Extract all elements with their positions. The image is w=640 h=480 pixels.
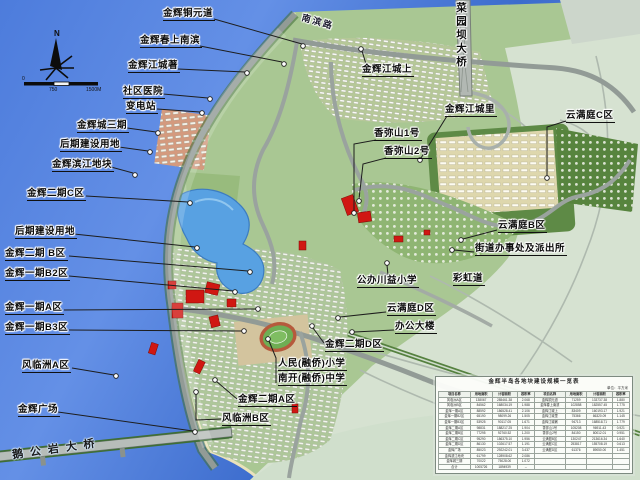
label-jiedao-banshichu: 街道办事处及派出所 (475, 243, 567, 256)
label-yunmanting-b: 云满庭B区 (498, 220, 547, 233)
label-jinhui-erqi-b: 金辉二期 B区 (5, 248, 68, 261)
table-cell: 1894939 (492, 464, 517, 470)
leader-dot-jinhui-binjiang-dikuai (133, 173, 138, 178)
label-caiyuanba-bridge: 菜园坝大桥 (455, 2, 468, 71)
label-caihong-dao: 彩虹道 (453, 273, 485, 286)
leader-fenglinzhou-a (72, 368, 114, 375)
svg-text:750: 750 (49, 87, 58, 92)
table-cell: 1005726 (470, 464, 492, 470)
table-unit-note: 单位：平方米 (438, 386, 628, 390)
label-jinhui-tongyuandao: 金辉铜元道 (163, 8, 215, 21)
leader-dot-yunmanting-d (336, 316, 341, 321)
label-gongban-chuanyi-xiaoxue: 公办川益小学 (357, 275, 419, 288)
leader-dot-houqi-jianshe-1 (148, 150, 153, 155)
svg-text:0: 0 (22, 76, 25, 82)
label-jinhui-erqi-c: 金辉二期C区 (27, 188, 86, 201)
label-jinhui-chunshang-nanbin: 金辉春上南滨 (140, 35, 202, 48)
table-row: 合计10057261894939-- (439, 464, 630, 470)
leader-dot-jinhui-tongyuandao (301, 44, 306, 49)
table-cell: 合计 (439, 464, 471, 470)
leader-dot-fenglinzhou-a (114, 374, 119, 379)
label-jinhuicheng-sanqi: 金辉城三期 (77, 120, 129, 133)
label-jinhui-erqi-d: 金辉二期D区 (325, 339, 384, 352)
label-jinhui-yiqi-b3: 金辉一期B3区 (5, 322, 70, 335)
leader-dot-jinhui-yiqi-b2 (233, 290, 238, 295)
label-fenglinzhou-a: 风临洲A区 (22, 360, 71, 373)
leader-dot-xiangmishan-2 (357, 199, 362, 204)
build-scale-table: 金辉半岛各地块建设规模一览表 单位：平方米 项目名称用地面积计容面积容积率项目名… (435, 376, 633, 474)
leader-jinhui-guangchang (58, 412, 193, 431)
label-jinhui-guangchang: 金辉广场 (18, 404, 60, 417)
table-cell (534, 464, 565, 470)
leader-dot-yunmanting-c (545, 176, 550, 181)
leader-dot-jinhui-erqi-c (188, 201, 193, 206)
label-renmin-rongqiao-xiaoxue: 人民(融侨)小学 (278, 358, 347, 371)
scale-bar: 0 750 1500M (22, 76, 101, 92)
table-cell: -- (517, 464, 534, 470)
leader-dot-yunmanting-b (459, 238, 464, 243)
leader-dot-jinhui-erqi-b (248, 270, 253, 275)
masterplan-map: N 0 750 1500M 金辉半岛各地块建设规模一览表 单位：平方米 项目名称… (0, 0, 640, 480)
leader-dot-biandianzhan (200, 111, 205, 116)
leader-dot-jinhui-jiangcheng-shang (359, 47, 364, 52)
leader-dot-houqi-jianshe-2 (195, 246, 200, 251)
leader-shequ-yiyuan (163, 94, 208, 98)
north-label: N (54, 29, 60, 38)
label-xiangmishan-2: 香弥山2号 (384, 146, 432, 159)
label-jinhui-erqi-a: 金辉二期A区 (238, 394, 297, 407)
label-fenglinzhou-b: 风临洲B区 (222, 413, 271, 426)
label-shequ-yiyuan: 社区医院 (123, 86, 165, 99)
leader-houqi-jianshe-1 (119, 147, 148, 151)
table-grid: 项目名称用地面积计容面积容积率项目名称用地面积计容面积容积率风临洲A区13806… (438, 391, 630, 470)
leader-dot-renmin-rongqiao-xiaoxue (266, 337, 271, 342)
label-jinhui-jiangcheng-zhu: 金辉江城著 (128, 60, 180, 73)
leader-dot-jinhui-chunshang-nanbin (282, 62, 287, 67)
label-bangong-dalou: 办公大楼 (395, 321, 437, 334)
leader-dot-xiangmishan-1 (352, 211, 357, 216)
leader-dot-jinhui-guangchang (193, 430, 198, 435)
label-biandianzhan: 变电站 (126, 101, 158, 114)
label-jinhui-jiangcheng-shang: 金辉江城上 (362, 64, 414, 77)
leader-dot-bangong-dalou (350, 330, 355, 335)
leader-dot-fenglinzhou-b (194, 390, 199, 395)
label-yunmanting-c: 云满庭C区 (566, 110, 615, 123)
label-xiangmishan-1: 香弥山1号 (374, 128, 422, 141)
compass-rose: N 0 750 1500M (16, 26, 106, 92)
label-yunmanting-d: 云满庭D区 (387, 303, 436, 316)
leader-jinhui-binjiang-dikuai (111, 167, 133, 173)
label-jinhui-yiqi-b2: 金辉一期B2区 (5, 268, 70, 281)
leader-dot-jinhuicheng-sanqi (156, 131, 161, 136)
leader-jinhui-jiangcheng-zhu (178, 69, 245, 72)
label-houqi-jianshe-1: 后期建设用地 (60, 139, 122, 152)
table-cell (565, 464, 587, 470)
leader-dot-jinhui-yiqi-a (256, 307, 261, 312)
leader-dot-jiedao-banshichu (450, 248, 455, 253)
label-nankai-rongqiao-zhongxue: 南开(融侨)中学 (278, 373, 347, 386)
table-title: 金辉半岛各地块建设规模一览表 (438, 378, 630, 386)
leader-dot-jinhui-erqi-d (310, 324, 315, 329)
leader-dot-jinhui-yiqi-b3 (242, 329, 247, 334)
leader-dot-gongban-chuanyi-xiaoxue (385, 261, 390, 266)
label-jinhui-jiangcheng-li: 金辉江城里 (445, 104, 497, 117)
table-cell (612, 464, 629, 470)
label-jinhui-binjiang-dikuai: 金辉滨江地块 (52, 159, 114, 172)
leader-jinhuicheng-sanqi (127, 128, 156, 132)
label-houqi-jianshe-2: 后期建设用地 (15, 226, 77, 239)
table-cell (587, 464, 612, 470)
label-jinhui-yiqi-a: 金辉一期A区 (5, 302, 64, 315)
leader-dot-jinhui-jiangcheng-zhu (245, 71, 250, 76)
svg-text:1500M: 1500M (86, 87, 101, 92)
leader-dot-jinhui-erqi-a (213, 378, 218, 383)
leader-dot-shequ-yiyuan (208, 97, 213, 102)
